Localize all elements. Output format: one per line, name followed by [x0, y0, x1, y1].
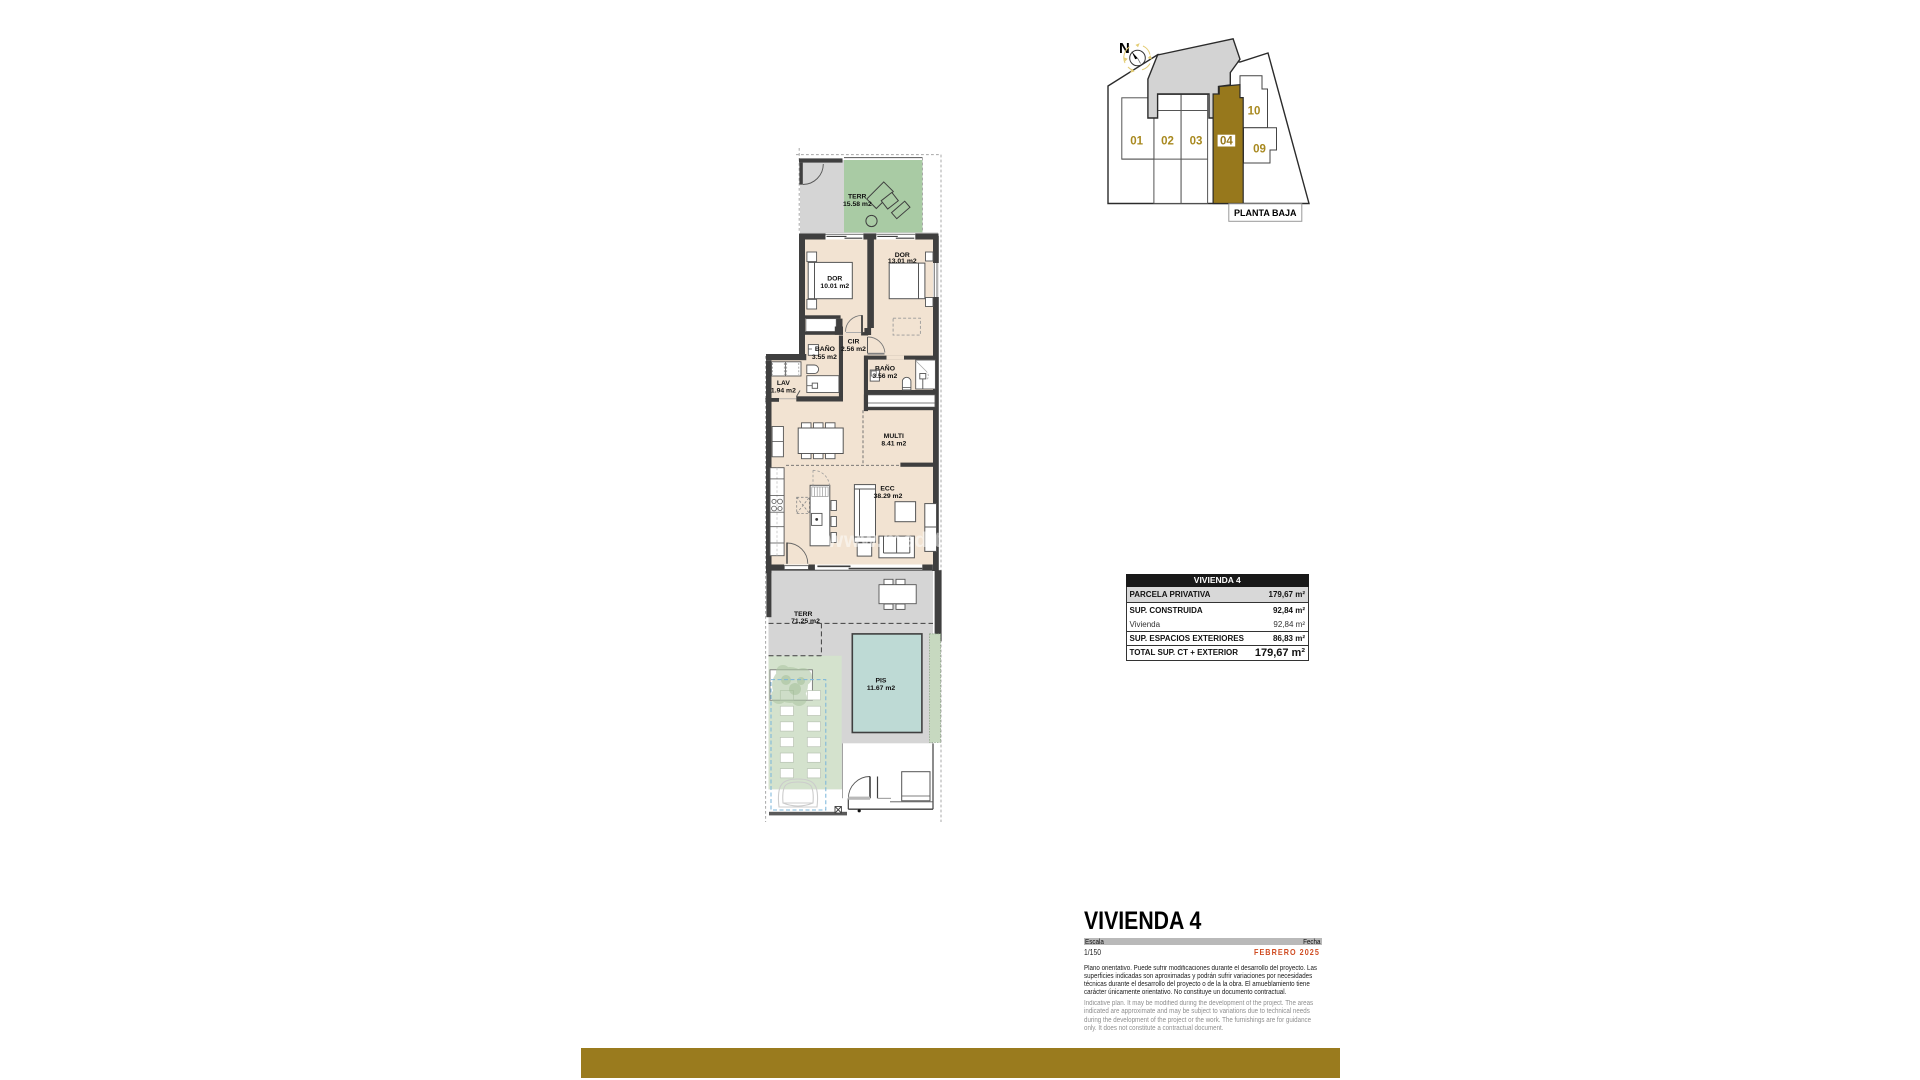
svg-text:15.58 m2: 15.58 m2 [843, 201, 872, 208]
svg-text:DOR: DOR [827, 276, 842, 283]
svg-text:10: 10 [1248, 106, 1261, 118]
svg-text:71,25 m2: 71,25 m2 [791, 618, 820, 625]
svg-text:11.67 m2: 11.67 m2 [867, 685, 896, 692]
svg-text:10.01 m2: 10.01 m2 [820, 283, 849, 290]
svg-text:1.94 m2: 1.94 m2 [771, 388, 796, 395]
svg-text:2.56 m2: 2.56 m2 [841, 346, 866, 353]
svg-text:CIR: CIR [848, 339, 860, 346]
svg-text:PLANTA BAJA: PLANTA BAJA [1234, 208, 1297, 218]
svg-text:03: 03 [1190, 136, 1203, 148]
svg-text:TERR: TERR [794, 611, 813, 618]
svg-text:04: 04 [1220, 135, 1233, 147]
svg-text:13.01 m2: 13.01 m2 [888, 258, 917, 265]
svg-text:TERR: TERR [848, 193, 867, 200]
svg-text:3.55 m2: 3.55 m2 [812, 354, 837, 361]
svg-text:BAÑO: BAÑO [815, 344, 835, 353]
svg-text:3.56 m2: 3.56 m2 [872, 373, 897, 380]
svg-text:PIS: PIS [876, 677, 887, 684]
svg-text:ECC: ECC [880, 486, 894, 493]
svg-text:38.29 m2: 38.29 m2 [874, 493, 903, 500]
svg-text:BAÑO: BAÑO [875, 364, 895, 373]
svg-text:01: 01 [1130, 136, 1143, 148]
svg-text:02: 02 [1161, 136, 1174, 148]
svg-text:09: 09 [1253, 144, 1266, 156]
svg-text:8.41 m2: 8.41 m2 [881, 441, 906, 448]
svg-text:MULTI: MULTI [884, 433, 904, 440]
svg-text:LAV: LAV [777, 380, 791, 387]
svg-text:www.medit: www.medit [826, 529, 942, 552]
